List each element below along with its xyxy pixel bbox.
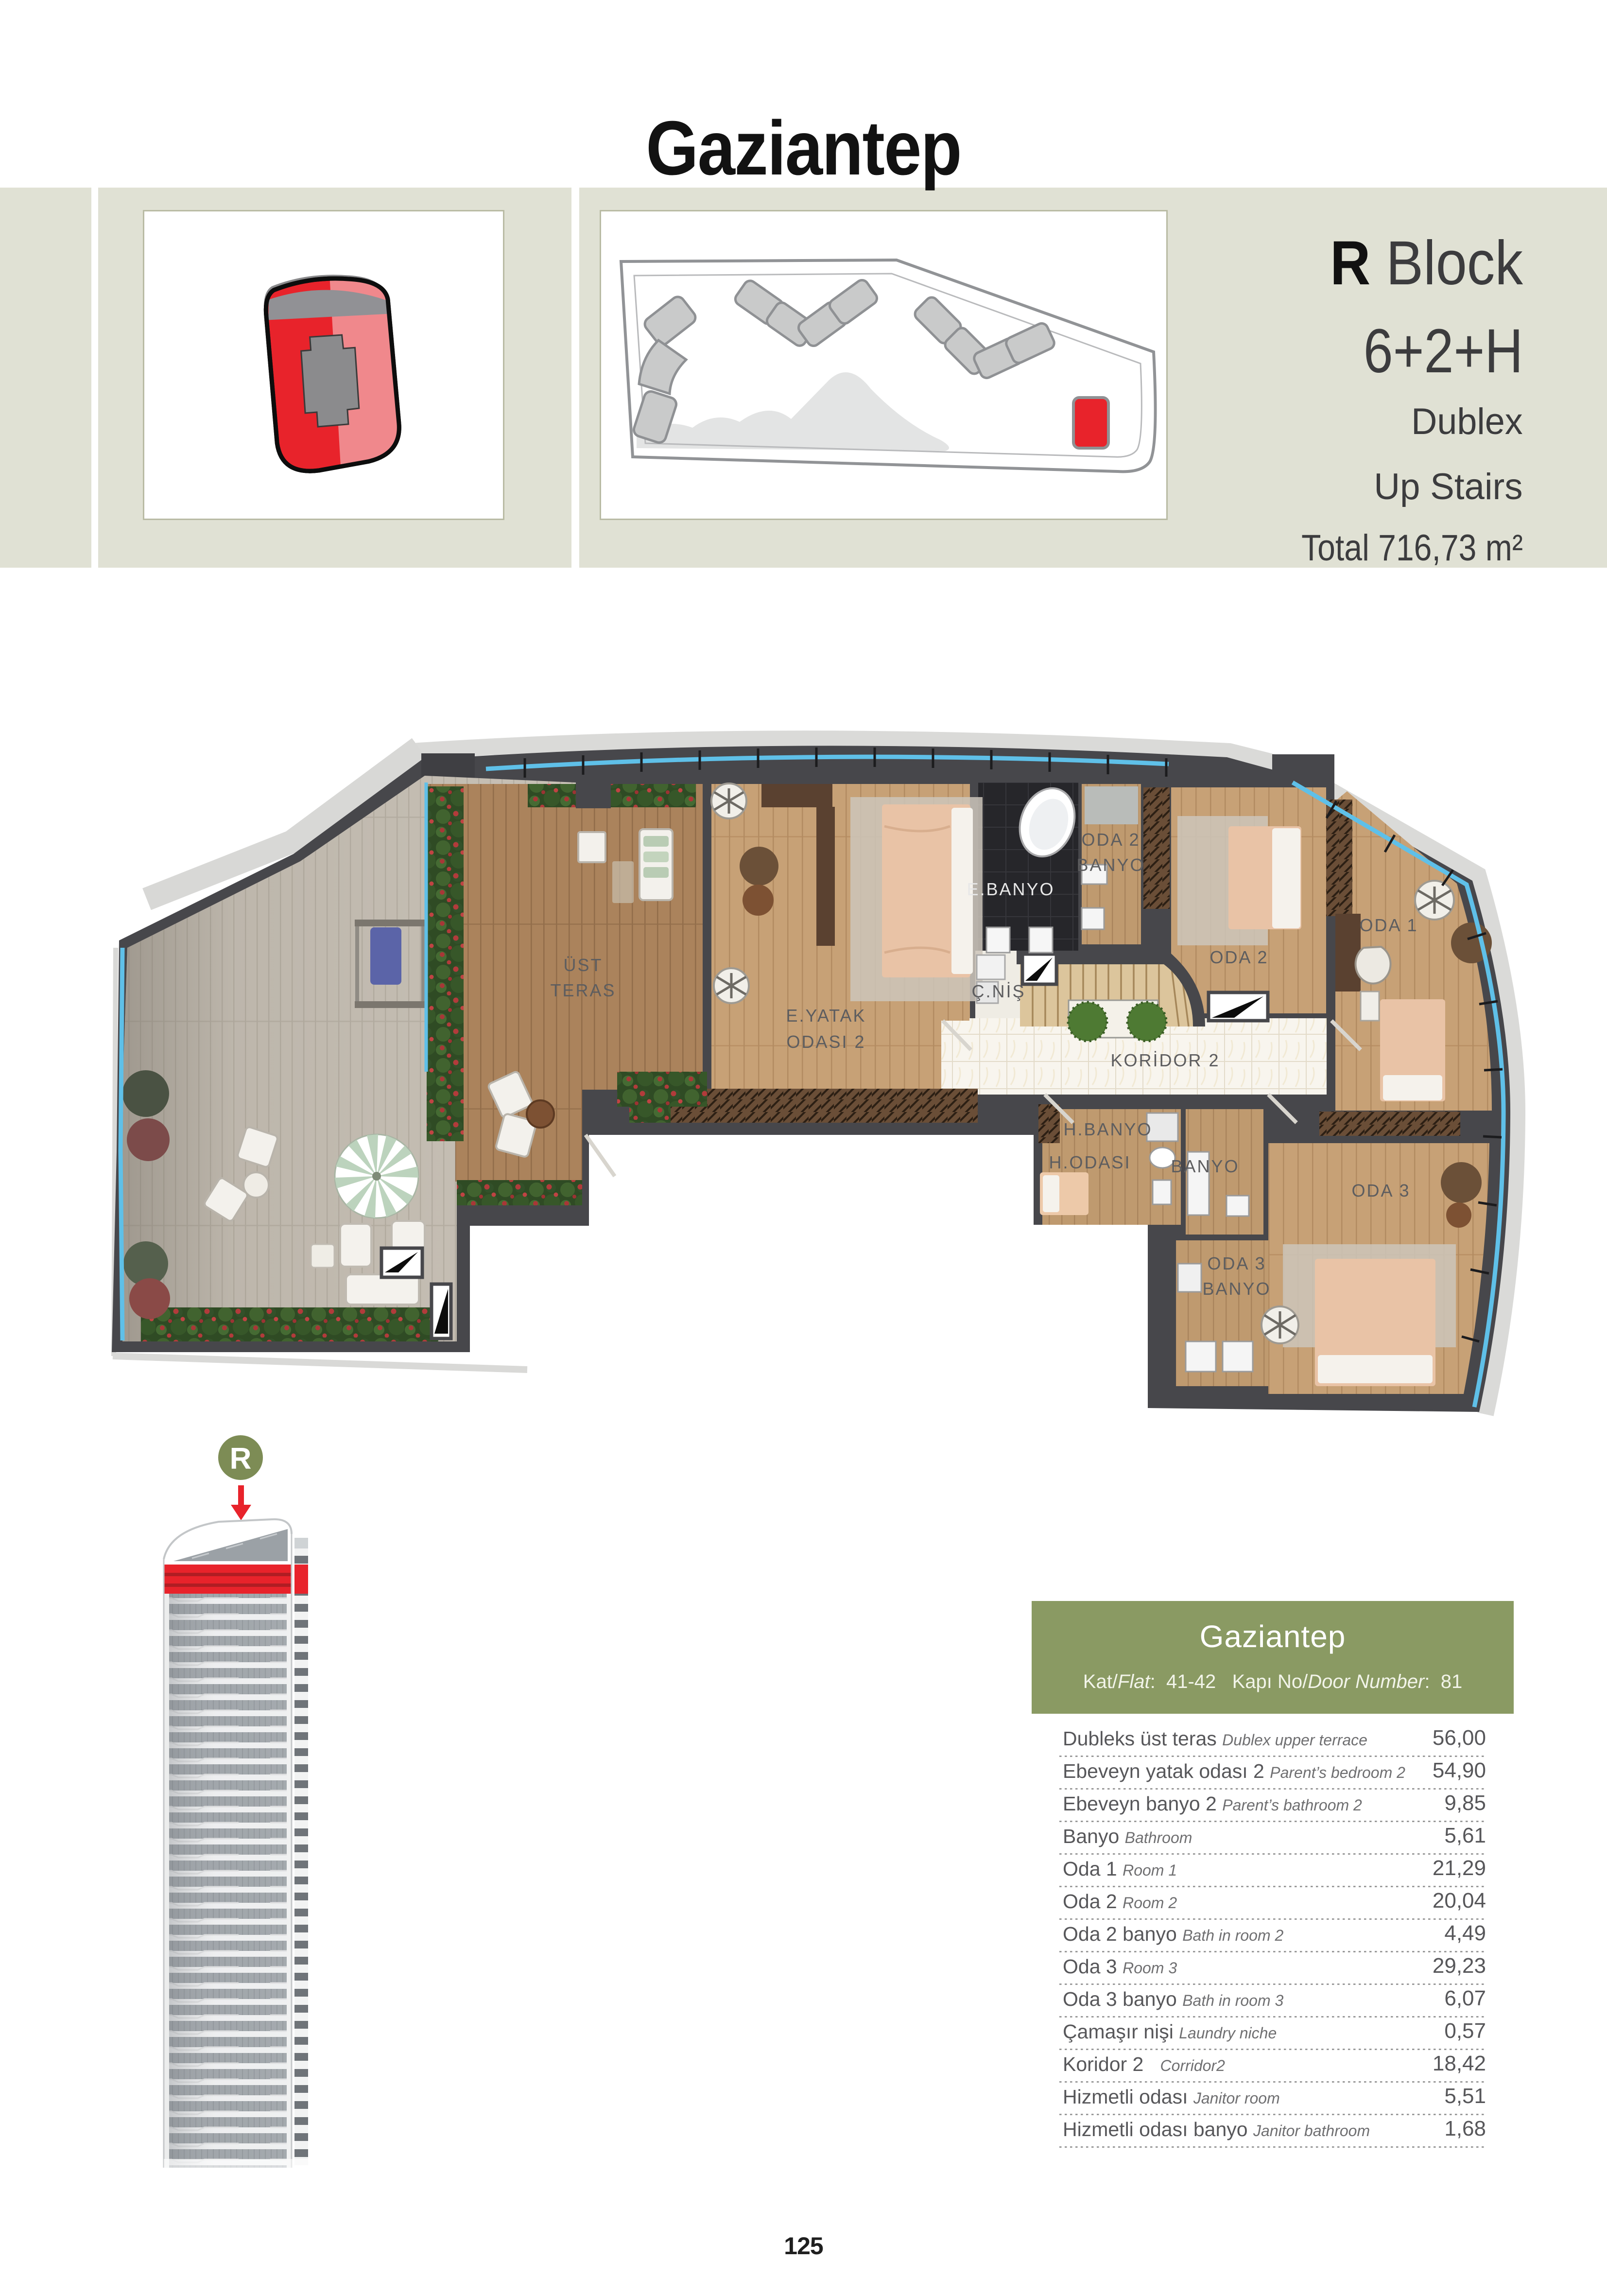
svg-text:ODA 3: ODA 3 [1207, 1253, 1266, 1273]
svg-text:ODA 1: ODA 1 [1359, 915, 1418, 935]
svg-text:ODA 2: ODA 2 [1081, 830, 1140, 850]
svg-text:KORİDOR 2: KORİDOR 2 [1110, 1050, 1220, 1070]
svg-text:ODASI 2: ODASI 2 [786, 1032, 865, 1052]
svg-text:BANYO: BANYO [1076, 855, 1145, 875]
svg-text:Ç.NİŞ: Ç.NİŞ [971, 981, 1025, 1001]
svg-text:ODA 2: ODA 2 [1210, 947, 1268, 967]
svg-text:E.BANYO: E.BANYO [967, 879, 1054, 899]
svg-text:BANYO: BANYO [1202, 1279, 1271, 1299]
svg-text:BANYO: BANYO [1171, 1156, 1239, 1176]
svg-text:H.BANYO: H.BANYO [1063, 1119, 1152, 1139]
svg-text:TERAS: TERAS [550, 980, 616, 1000]
svg-text:H.ODASI: H.ODASI [1049, 1152, 1131, 1172]
svg-text:E.YATAK: E.YATAK [786, 1006, 866, 1026]
svg-text:R: R [230, 1442, 252, 1476]
svg-text:ODA 3: ODA 3 [1351, 1181, 1410, 1200]
svg-text:ÜST: ÜST [564, 955, 603, 975]
